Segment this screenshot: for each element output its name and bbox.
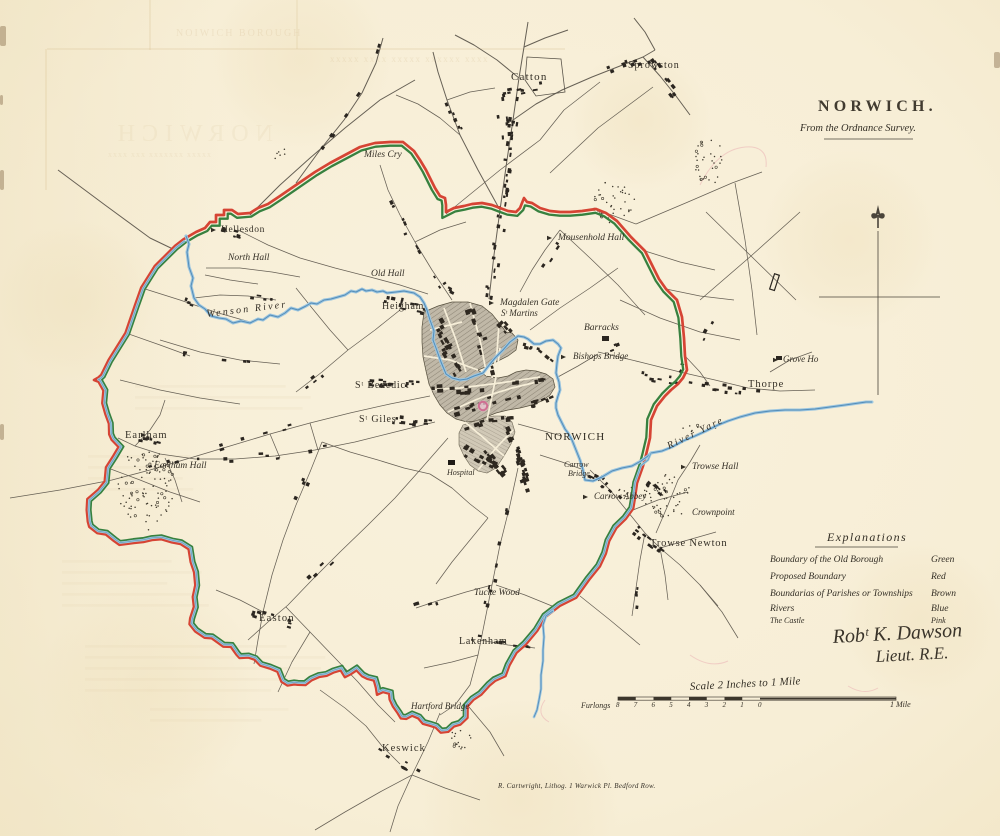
svg-text:Barracks: Barracks [584, 323, 619, 333]
svg-text:7: 7 [634, 701, 638, 709]
svg-text:Hellesdon: Hellesdon [221, 225, 265, 235]
svg-text:Keswick: Keswick [382, 743, 426, 754]
svg-text:Rivers: Rivers [769, 604, 795, 614]
svg-text:Explanations: Explanations [826, 530, 907, 544]
svg-text:5: 5 [669, 701, 673, 709]
svg-text:Catton: Catton [511, 71, 548, 83]
svg-text:Sᵗ Martins: Sᵗ Martins [501, 308, 538, 318]
svg-text:Heigham: Heigham [382, 301, 424, 312]
svg-text:Bridge: Bridge [568, 469, 590, 478]
svg-text:3: 3 [704, 701, 709, 709]
svg-text:The Castle: The Castle [770, 616, 805, 625]
svg-text:Boundary of the Old Borough: Boundary of the Old Borough [770, 554, 883, 565]
svg-text:Trowse Newton: Trowse Newton [650, 538, 727, 549]
svg-text:Furlongs: Furlongs [580, 701, 610, 710]
svg-text:4: 4 [687, 701, 691, 709]
svg-text:From the Ordnance Survey.: From the Ordnance Survey. [799, 123, 916, 134]
svg-text:Old Hall: Old Hall [371, 269, 405, 279]
svg-text:Sᵗ Giles: Sᵗ Giles [359, 414, 396, 425]
svg-text:Earlham Hall: Earlham Hall [153, 461, 207, 471]
svg-text:Lieut. R.E.: Lieut. R.E. [874, 643, 949, 666]
svg-text:Miles Cry: Miles Cry [363, 150, 403, 160]
svg-text:8: 8 [616, 701, 620, 709]
svg-text:Sprowston: Sprowston [628, 60, 680, 71]
svg-text:Tucke Wood: Tucke Wood [474, 588, 520, 598]
svg-text:Magdalen Gate: Magdalen Gate [499, 298, 559, 308]
svg-text:1 Mile: 1 Mile [890, 700, 911, 709]
svg-text:xxxxx xxxx xxxxx xxxxxx xxxx: xxxxx xxxx xxxxx xxxxxx xxxx [330, 54, 489, 64]
svg-text:Brown: Brown [931, 589, 956, 599]
svg-text:Carrow Abbey: Carrow Abbey [594, 491, 646, 501]
svg-text:Lakenham: Lakenham [459, 636, 508, 647]
svg-text:Crownpoint: Crownpoint [692, 507, 735, 517]
svg-text:Boundarias of Parishes or Town: Boundarias of Parishes or Townships [770, 588, 913, 599]
svg-text:0: 0 [758, 701, 762, 709]
svg-text:1: 1 [740, 701, 744, 709]
svg-text:Carrow: Carrow [564, 460, 589, 469]
svg-text:NORWICH: NORWICH [111, 121, 273, 147]
svg-text:6: 6 [652, 701, 656, 709]
svg-text:NOIWICH BOROUGH: NOIWICH BOROUGH [176, 28, 302, 39]
svg-text:2: 2 [723, 701, 727, 709]
svg-text:Green: Green [931, 555, 955, 565]
svg-text:Grove Ho: Grove Ho [783, 354, 819, 364]
svg-text:Blue: Blue [931, 604, 948, 614]
svg-text:Easton: Easton [259, 613, 295, 624]
svg-text:Mousenhold Hall: Mousenhold Hall [557, 233, 625, 243]
svg-text:Thorpe: Thorpe [748, 379, 784, 390]
svg-text:Proposed Boundary: Proposed Boundary [769, 572, 847, 582]
svg-text:NORWICH: NORWICH [545, 431, 605, 443]
svg-text:North Hall: North Hall [227, 253, 270, 263]
svg-text:Hartford Bridge: Hartford Bridge [410, 701, 469, 711]
svg-text:Trowse Hall: Trowse Hall [692, 462, 739, 472]
svg-text:Hospital: Hospital [446, 468, 475, 477]
svg-text:Sᵗ Benedict: Sᵗ Benedict [355, 380, 409, 391]
svg-text:R. Cartwright, Lithog. 1 Warwi: R. Cartwright, Lithog. 1 Warwick Pl. Bed… [497, 782, 656, 790]
svg-text:Bishops Bridge: Bishops Bridge [573, 351, 628, 361]
svg-text:Earlham: Earlham [125, 430, 168, 441]
svg-text:Red: Red [930, 572, 946, 582]
svg-text:xxxx xxx xxxxxxx xxxxx: xxxx xxx xxxxxxx xxxxx [108, 150, 212, 159]
svg-text:NORWICH.: NORWICH. [818, 98, 937, 115]
